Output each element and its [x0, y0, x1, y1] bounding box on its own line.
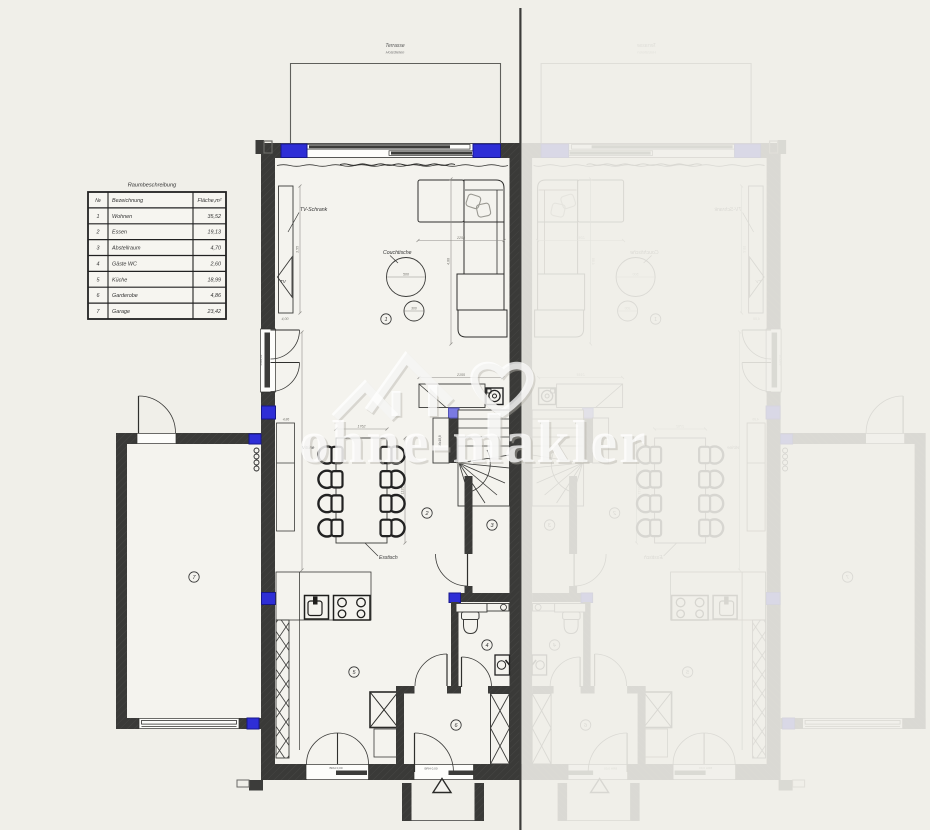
svg-text:4,00: 4,00	[447, 258, 451, 265]
svg-text:4,86: 4,86	[211, 293, 222, 299]
svg-text:ohne-makler: ohne-makler	[299, 409, 648, 475]
svg-text:Essen: Essen	[112, 230, 127, 236]
svg-text:6: 6	[97, 293, 100, 299]
svg-text:23,42: 23,42	[207, 309, 222, 315]
svg-text:3: 3	[97, 246, 100, 252]
svg-text:Fläche,m²: Fläche,m²	[198, 198, 222, 204]
svg-text:3,55: 3,55	[296, 246, 300, 253]
svg-text:2,60: 2,60	[210, 261, 222, 267]
svg-text:Raumbeschreibung: Raumbeschreibung	[128, 183, 177, 189]
svg-text:4,00: 4,00	[282, 317, 289, 321]
svg-text:Küche: Küche	[112, 277, 127, 283]
svg-text:Wohnen: Wohnen	[112, 214, 132, 220]
svg-text:BRH 0,00: BRH 0,00	[329, 766, 342, 770]
svg-text:1: 1	[97, 214, 100, 220]
svg-text:TV-Schrank: TV-Schrank	[300, 207, 328, 213]
svg-text:500: 500	[403, 273, 409, 277]
svg-text:2: 2	[96, 230, 100, 236]
svg-text:Garage: Garage	[112, 309, 130, 315]
svg-text:Couchtische: Couchtische	[383, 250, 412, 256]
svg-text:19,13: 19,13	[208, 230, 222, 236]
svg-text:BRH 0,00: BRH 0,00	[424, 767, 437, 771]
svg-text:300: 300	[411, 307, 417, 311]
svg-text:1: 1	[384, 317, 387, 323]
svg-text:2155: 2155	[456, 373, 465, 377]
svg-text:4,86: 4,86	[283, 418, 290, 422]
svg-text:№: №	[95, 198, 101, 204]
svg-text:Garderobe: Garderobe	[112, 293, 138, 299]
svg-text:1135: 1135	[401, 487, 405, 495]
svg-text:4,70: 4,70	[211, 246, 222, 252]
svg-text:TV: TV	[280, 279, 287, 284]
svg-text:Holzdielen: Holzdielen	[386, 50, 405, 55]
svg-text:4: 4	[485, 643, 488, 649]
svg-text:Gäste WC: Gäste WC	[112, 261, 137, 267]
svg-text:2255: 2255	[456, 236, 465, 240]
svg-text:2: 2	[424, 511, 428, 517]
svg-text:86x2,01: 86x2,01	[259, 354, 263, 365]
svg-text:Esstisch: Esstisch	[379, 555, 398, 561]
svg-text:Terrasse: Terrasse	[385, 43, 404, 49]
svg-text:35,52: 35,52	[208, 214, 222, 220]
svg-text:Bezeichnung: Bezeichnung	[112, 198, 143, 204]
svg-text:Abstellraum: Abstellraum	[111, 246, 141, 252]
svg-text:18,99: 18,99	[208, 277, 222, 283]
svg-text:4: 4	[97, 261, 100, 267]
